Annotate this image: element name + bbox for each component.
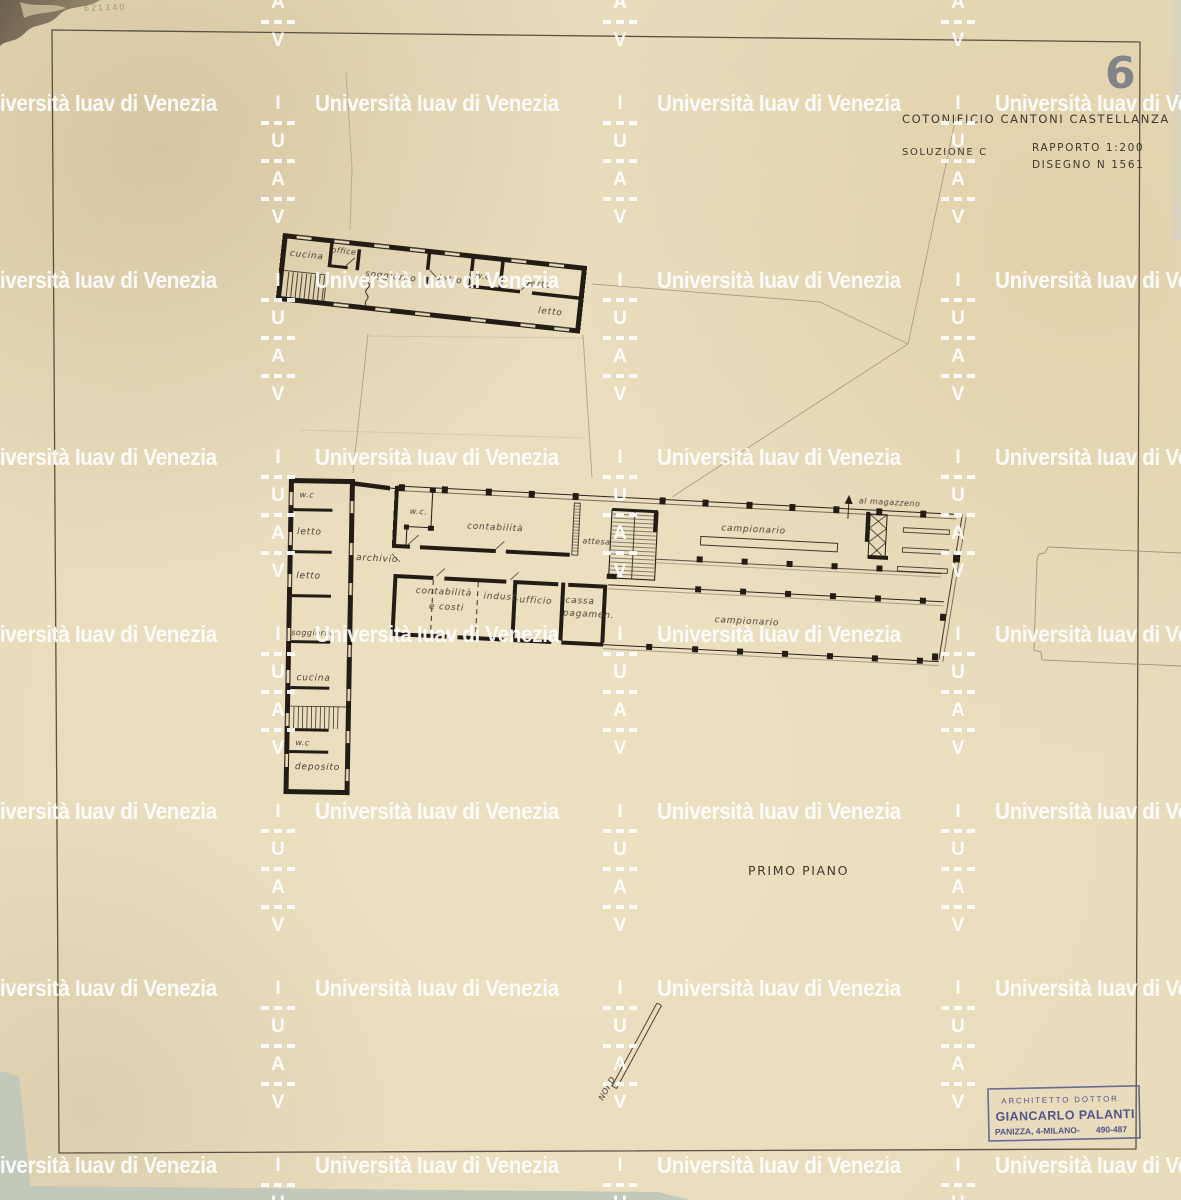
plan-caption: PRIMO PIANO bbox=[748, 863, 849, 878]
scale-label: RAPPORTO 1:200 bbox=[1032, 142, 1144, 154]
room-label: deposito bbox=[295, 762, 340, 773]
room-label: cassa bbox=[565, 596, 595, 607]
project-title: COTONIFICIO CANTONI CASTELLANZA bbox=[902, 112, 1170, 126]
room-label: w.c bbox=[475, 271, 490, 282]
room-label: w.c. bbox=[410, 507, 428, 517]
room-label: soggiorno bbox=[291, 628, 335, 638]
room-label: ufficio bbox=[519, 595, 553, 607]
scanned-drawing-sheet: 621340 bbox=[0, 0, 1181, 1200]
room-label: w.c bbox=[300, 490, 315, 499]
stamp-phone: 490-487 bbox=[1096, 1124, 1128, 1135]
stamp-line2: GIANCARLO PALANTI bbox=[995, 1107, 1134, 1124]
room-label: attesa bbox=[582, 536, 611, 546]
sheet-number: 6 bbox=[1105, 48, 1136, 99]
room-label: e costi bbox=[429, 602, 465, 614]
stamp-line3: PANIZZA, 4-MILANO- bbox=[995, 1125, 1080, 1137]
drawing-canvas: 621340 bbox=[0, 0, 1181, 1200]
solution-label: SOLUZIONE C bbox=[902, 147, 988, 158]
room-label: cucina bbox=[296, 673, 330, 684]
room-label: letto bbox=[296, 571, 321, 581]
pencil-note: 621340 bbox=[84, 3, 127, 13]
room-label: indust. bbox=[483, 592, 520, 604]
drawing-number: DISEGNO N 1561 bbox=[1032, 159, 1144, 171]
room-label: w.c bbox=[295, 738, 310, 747]
room-label: letto bbox=[297, 527, 322, 537]
